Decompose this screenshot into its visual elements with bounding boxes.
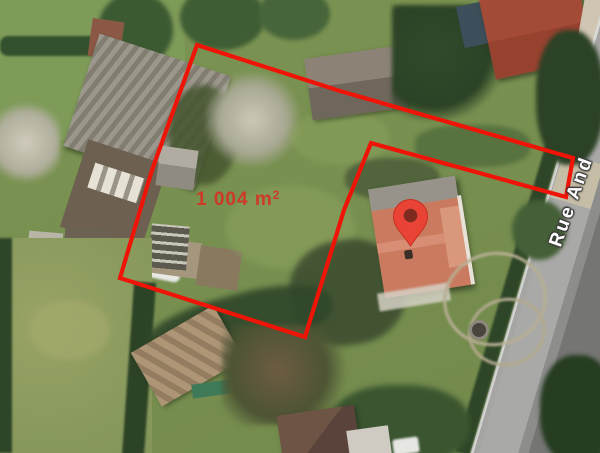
satellite-map[interactable]: 1 004 m2 Rue And xyxy=(0,0,600,453)
shed-row-2 xyxy=(195,245,242,290)
white-wall xyxy=(346,425,391,453)
roadside-trees-bottom xyxy=(540,355,600,453)
field-hedge-left xyxy=(0,238,12,453)
greenhouse xyxy=(148,223,190,270)
field-patch xyxy=(30,300,110,360)
tree-clump-top-2 xyxy=(258,0,330,40)
parcel-area-value: 1 004 m xyxy=(196,189,273,210)
pale-tree xyxy=(205,72,300,167)
roadside-trees-top xyxy=(536,30,600,165)
chimney xyxy=(404,249,413,259)
parcel-area-superscript: 2 xyxy=(273,188,281,202)
parcel-shed xyxy=(155,146,198,191)
bush-strip xyxy=(415,125,530,167)
trailer xyxy=(392,436,420,453)
well xyxy=(469,320,489,340)
tree-clump-top xyxy=(180,0,265,50)
flowering-tree xyxy=(0,100,60,185)
parcel-area-label: 1 004 m2 xyxy=(196,188,280,211)
grass-light-patch-2 xyxy=(290,110,390,165)
